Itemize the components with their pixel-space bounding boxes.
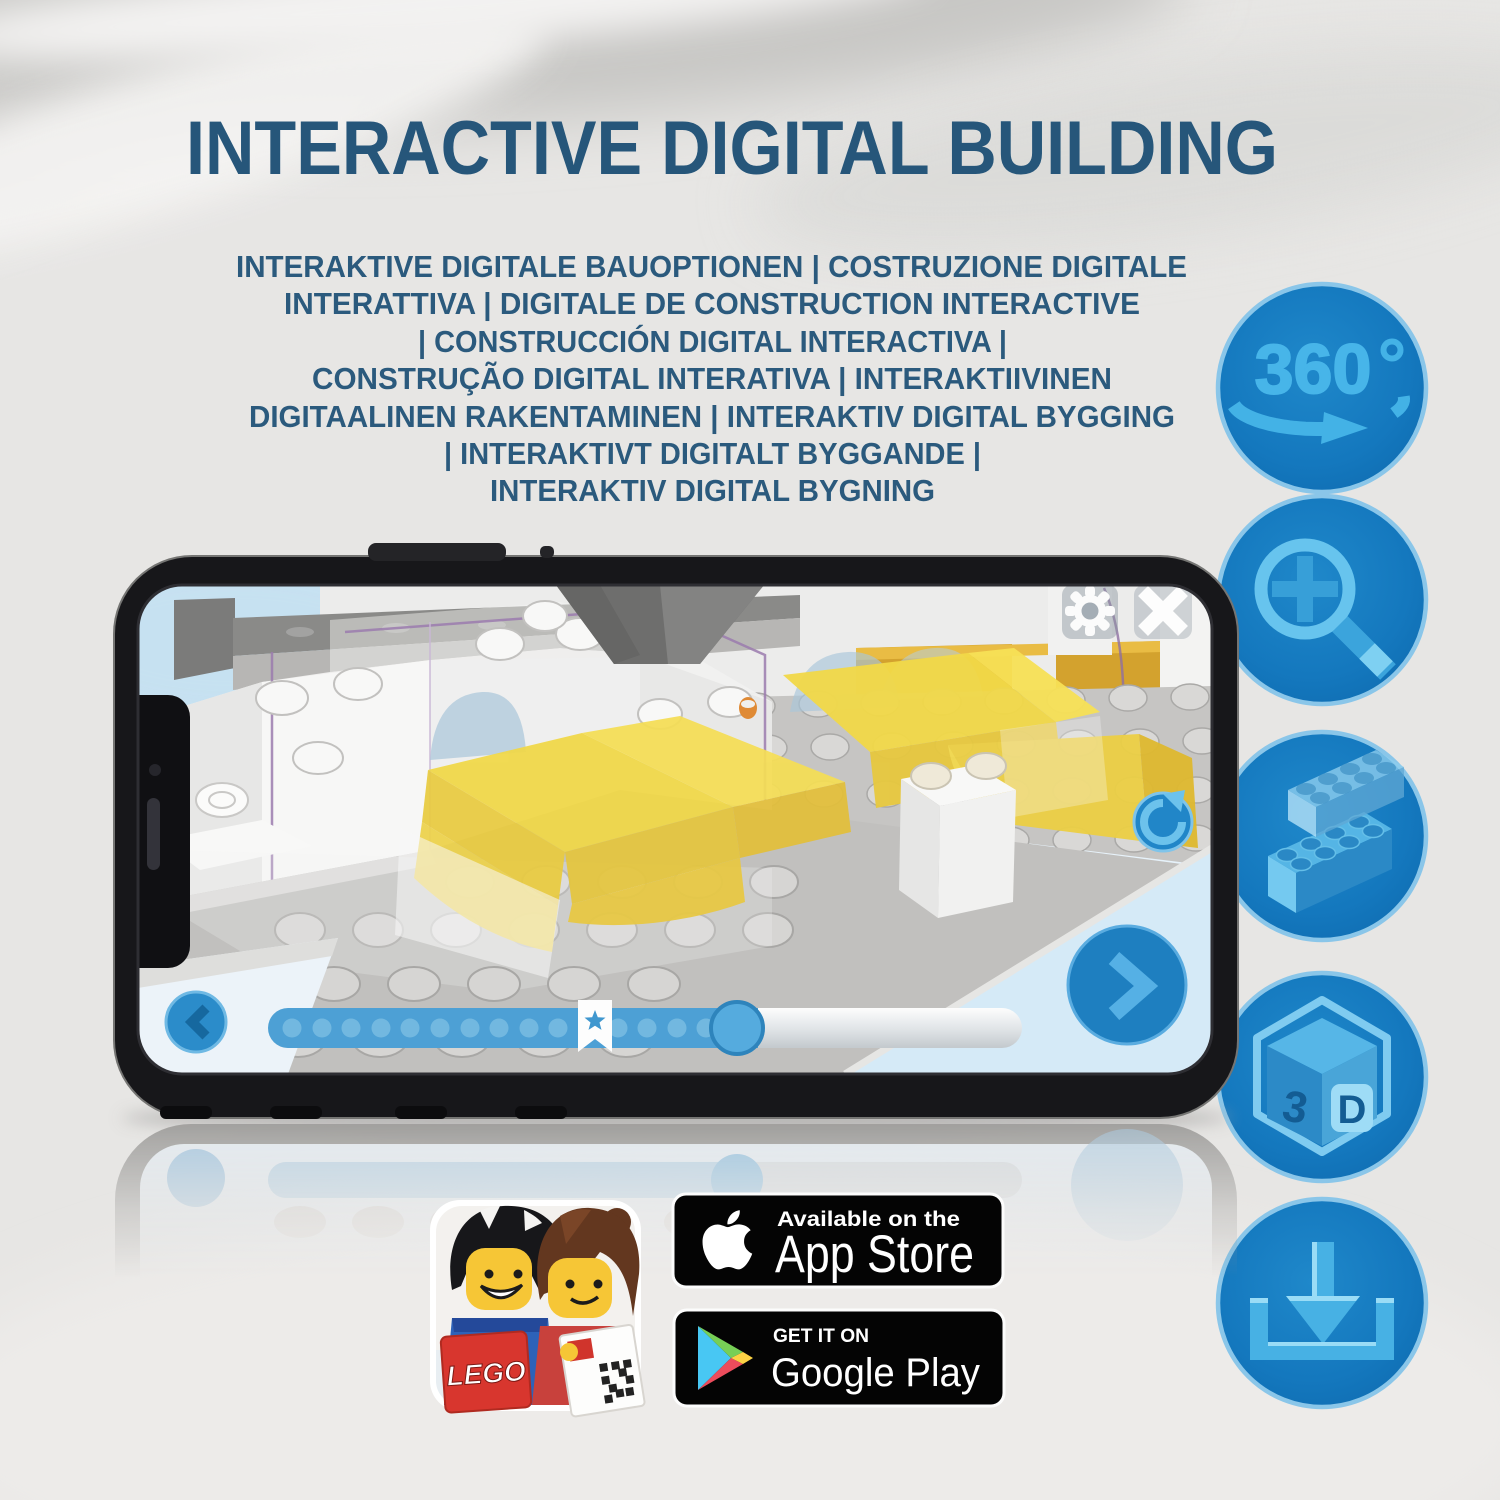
svg-text:360: 360 <box>1255 330 1372 408</box>
svg-text:DIGITAALINEN RAKENTAMINEN | IN: DIGITAALINEN RAKENTAMINEN | INTERAKTIV D… <box>249 399 1175 434</box>
svg-text:INTERATTIVA | DIGITALE DE CONS: INTERATTIVA | DIGITALE DE CONSTRUCTION I… <box>284 286 1140 321</box>
svg-text:CONSTRUÇÃO DIGITAL INTERATIVA: CONSTRUÇÃO DIGITAL INTERATIVA | INTERAKT… <box>312 361 1112 396</box>
svg-text:App Store: App Store <box>775 1225 974 1284</box>
svg-text:Google Play: Google Play <box>771 1351 980 1395</box>
svg-text:| INTERAKTIVT DIGITALT BYGGAND: | INTERAKTIVT DIGITALT BYGGANDE | <box>444 436 981 471</box>
svg-text:| CONSTRUCCIÓN DIGITAL INTERAC: | CONSTRUCCIÓN DIGITAL INTERACTIVA | <box>418 323 1007 359</box>
svg-text:INTERAKTIVE DIGITALE BAUOPTION: INTERAKTIVE DIGITALE BAUOPTIONEN | COSTR… <box>236 249 1187 284</box>
svg-text:GET IT ON: GET IT ON <box>773 1326 869 1347</box>
svg-text:LEGO: LEGO <box>445 1355 527 1391</box>
svg-text:INTERACTIVE DIGITAL BUILDING: INTERACTIVE DIGITAL BUILDING <box>186 106 1278 191</box>
svg-text:D: D <box>1338 1088 1367 1132</box>
svg-text:INTERAKTIV DIGITAL BYGNING: INTERAKTIV DIGITAL BYGNING <box>490 473 935 508</box>
